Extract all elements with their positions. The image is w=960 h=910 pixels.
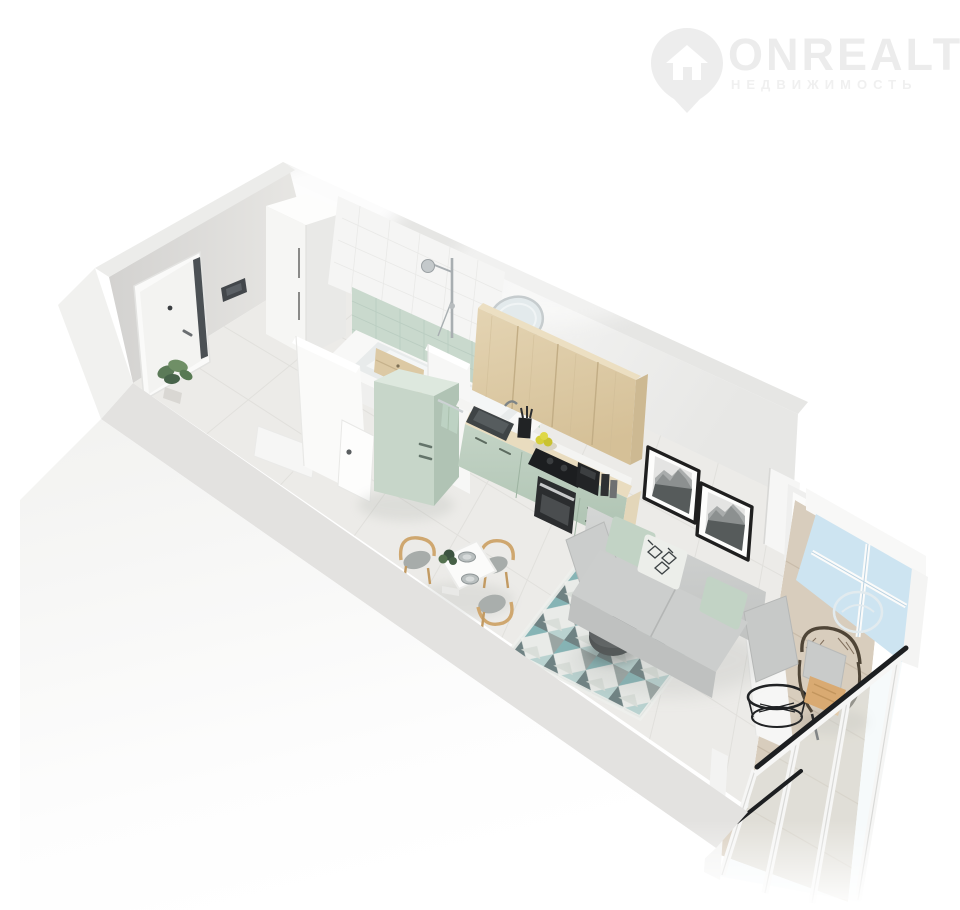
fridge-front [374, 381, 434, 506]
bottom-fade [600, 820, 960, 910]
wardrobe-front [266, 206, 306, 356]
watermark-logo: ONREALT НЕДВИЖИМОСТЬ [651, 28, 960, 113]
bottle [600, 474, 609, 496]
door-peephole [168, 306, 173, 311]
house-location-pin-icon [651, 28, 723, 113]
watermark-brand-text: ONREALT [728, 29, 960, 80]
floorplan-render-canvas: ONREALT НЕДВИЖИМОСТЬ [0, 0, 960, 910]
mint-fridge [374, 369, 459, 506]
watermark-tagline-text: НЕДВИЖИМОСТЬ [731, 77, 917, 92]
bathroom-door-handle [346, 449, 351, 454]
apartment-3d-render: ONREALT НЕДВИЖИМОСТЬ [0, 0, 960, 910]
jar [610, 480, 618, 498]
